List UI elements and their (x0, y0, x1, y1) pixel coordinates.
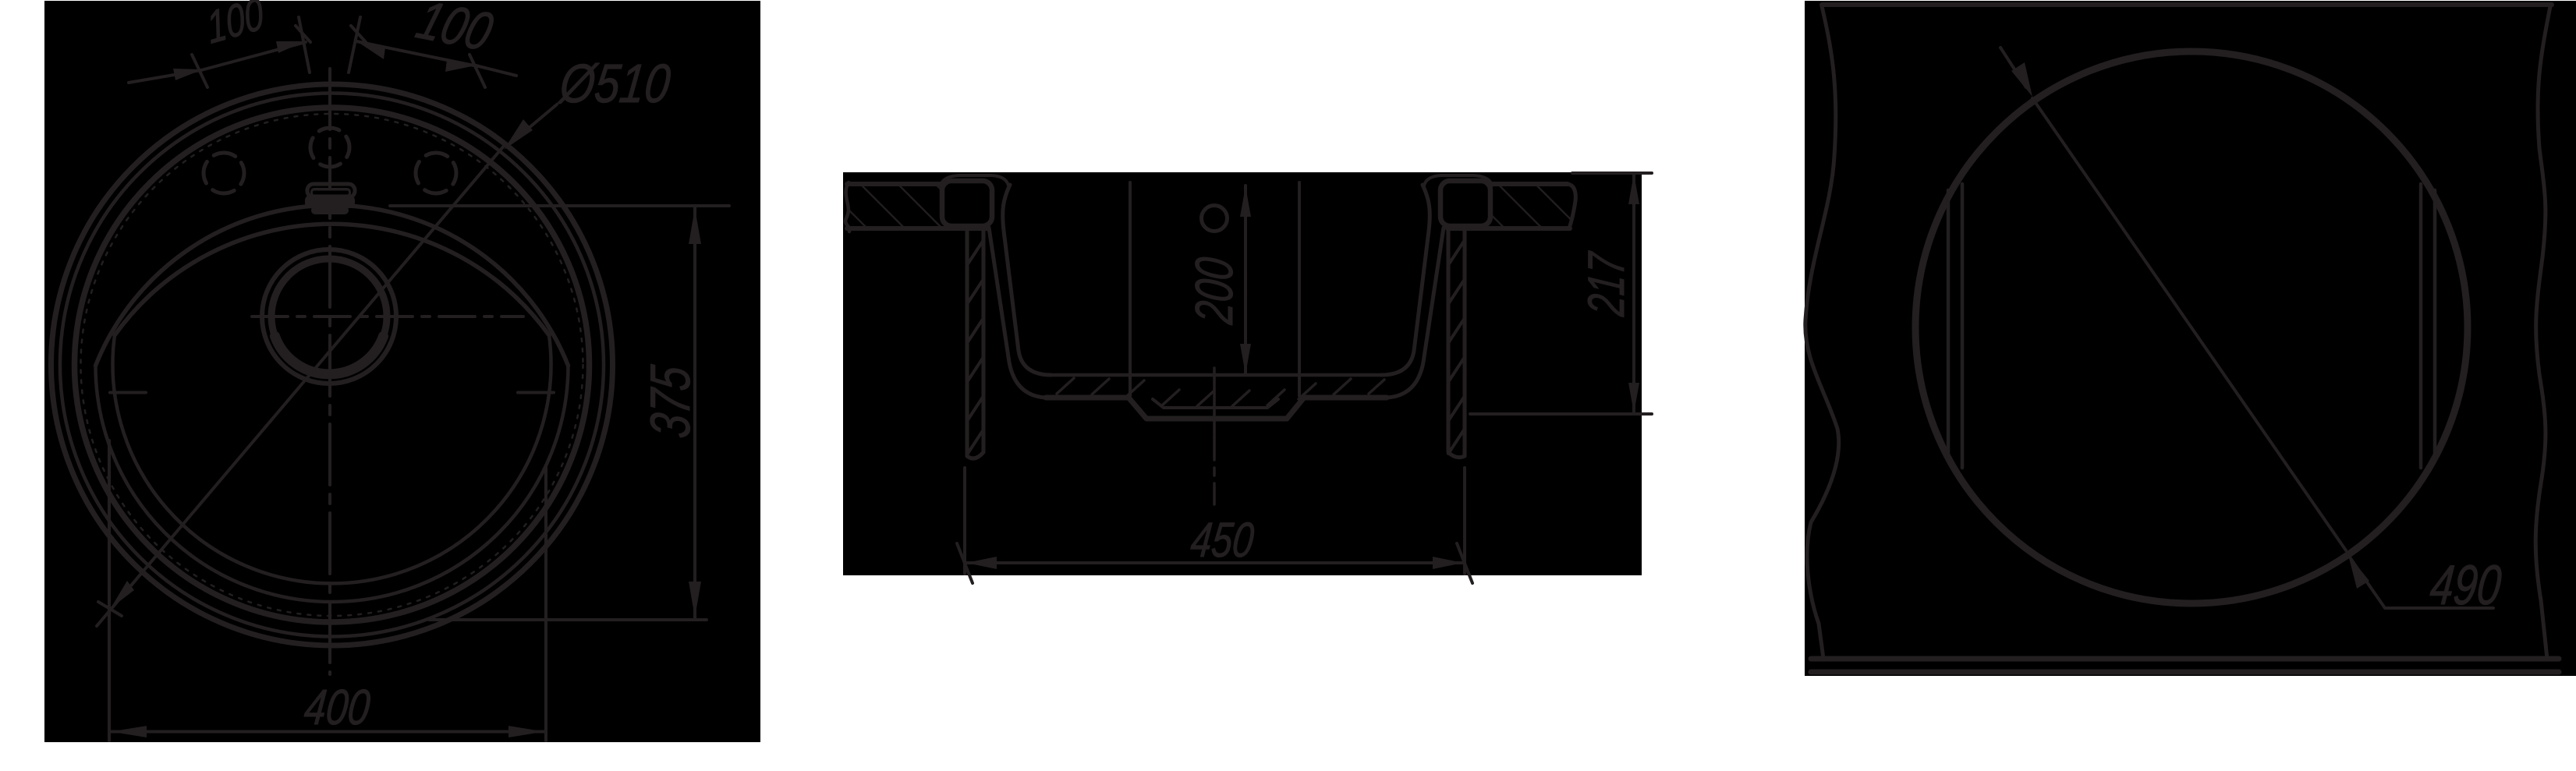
svg-text:490: 490 (2427, 553, 2504, 617)
svg-text:200: 200 (1185, 255, 1244, 327)
svg-text:400: 400 (302, 680, 373, 735)
svg-text:217: 217 (1579, 249, 1635, 319)
svg-text:450: 450 (1189, 512, 1256, 568)
svg-text:375: 375 (639, 363, 702, 440)
svg-text:Ø510: Ø510 (555, 53, 673, 114)
